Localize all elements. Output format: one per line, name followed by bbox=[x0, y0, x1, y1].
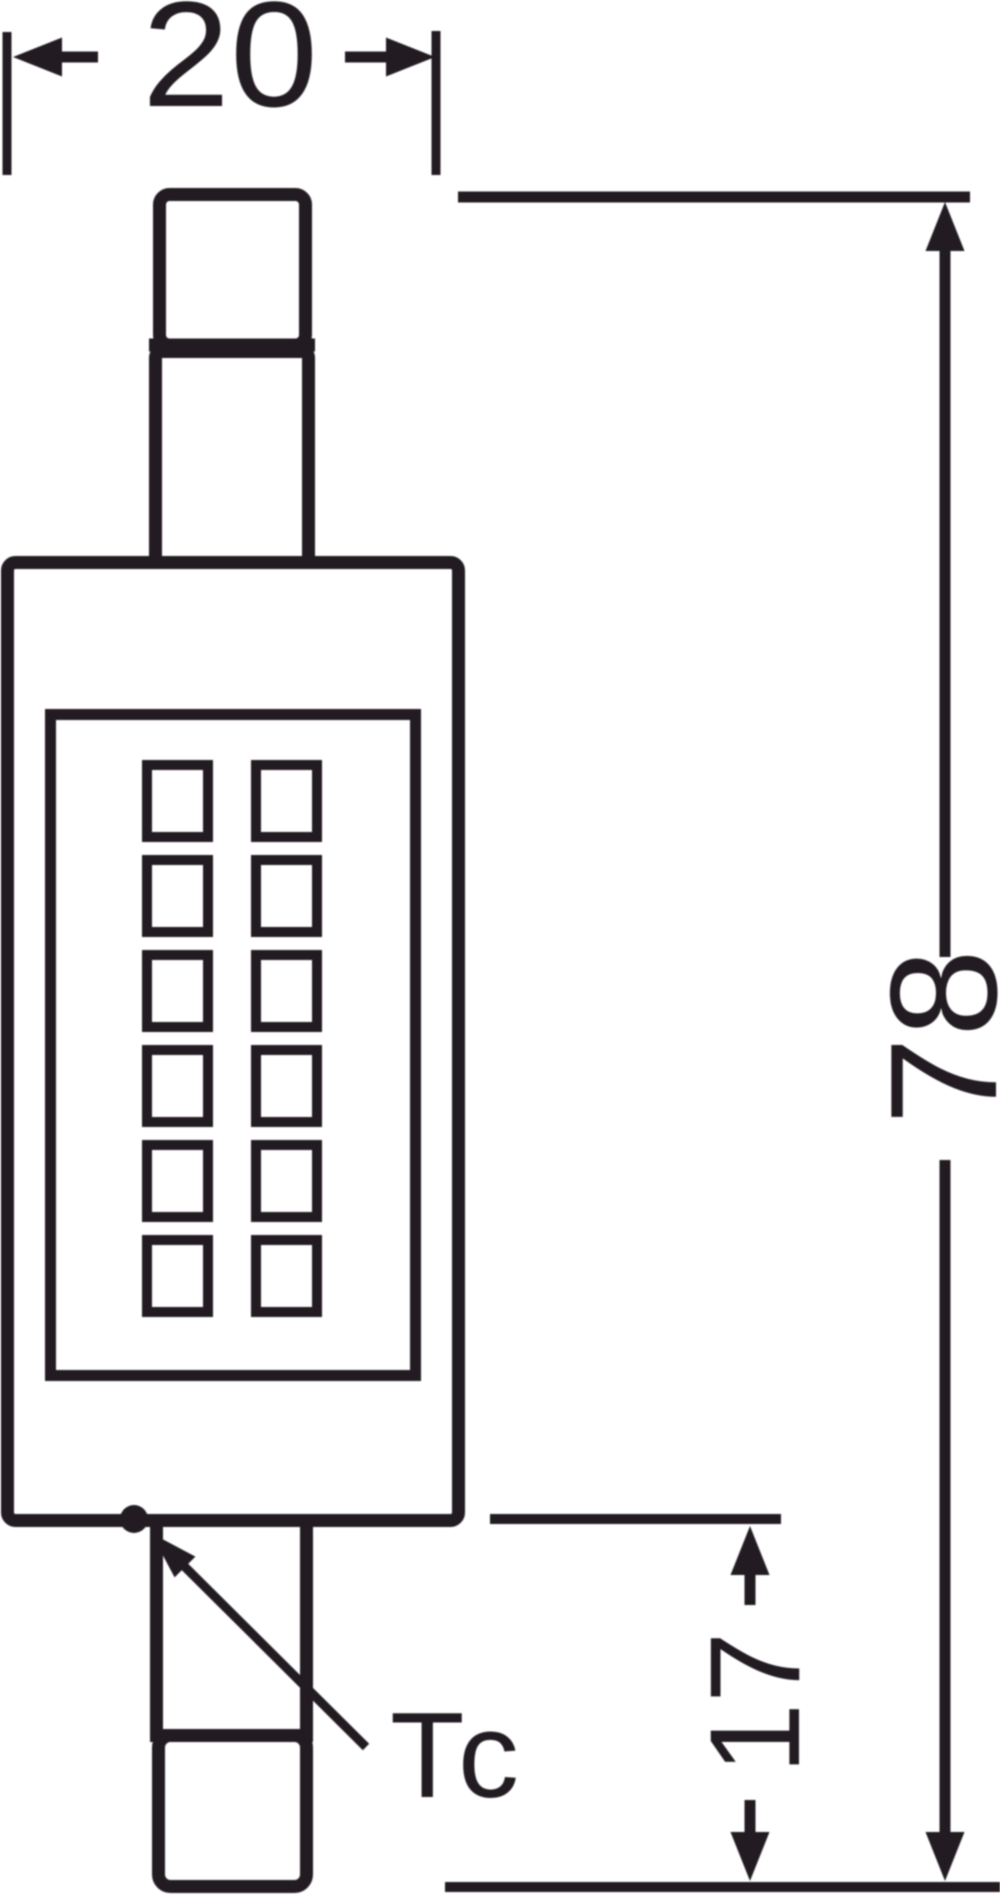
svg-text:17: 17 bbox=[684, 1632, 827, 1774]
svg-text:78: 78 bbox=[859, 949, 1000, 1125]
svg-text:Tc: Tc bbox=[390, 1687, 526, 1823]
svg-text:20: 20 bbox=[142, 0, 318, 138]
